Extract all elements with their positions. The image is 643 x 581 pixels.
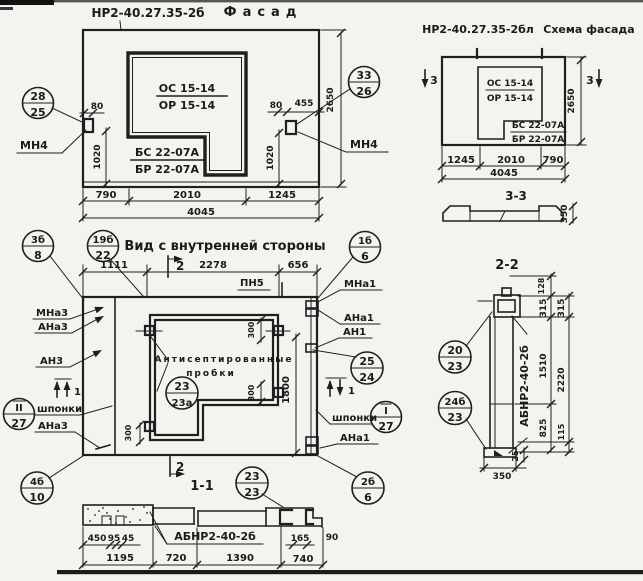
svg-text:1020: 1020 — [266, 145, 276, 170]
svg-text:1020: 1020 — [93, 144, 103, 169]
svg-text:790: 790 — [543, 155, 564, 166]
section-2-2: 2-2 АБНР2-40-2б 128 315 1510 825 315 — [439, 258, 575, 482]
svg-text:20: 20 — [447, 344, 463, 357]
svg-text:1111: 1111 — [100, 260, 128, 271]
inner-view-drawing: Вид с внутренней стороны 3б 8 19б 22 1б … — [4, 231, 402, 505]
schema-mark: НР2-40.27.35-2бл — [422, 23, 534, 36]
svg-text:3: 3 — [586, 74, 594, 87]
svg-text:АНа3: АНа3 — [38, 421, 68, 432]
svg-text:25: 25 — [359, 355, 374, 368]
label-ana1: АНа1 — [318, 310, 380, 324]
anchor-label-mn4-right: МН4 — [298, 132, 388, 152]
svg-text:I: I — [384, 406, 388, 417]
svg-text:4045: 4045 — [490, 168, 518, 179]
facade-window-code-bottom: ОР 15-14 — [159, 99, 216, 112]
svg-text:90: 90 — [326, 533, 339, 543]
section-2-2-title: 2-2 — [495, 258, 519, 273]
label-mna3: МНа3 — [33, 304, 105, 319]
svg-text:2б: 2б — [361, 476, 375, 488]
inner-view-title: Вид с внутренней стороны — [124, 239, 325, 254]
callout-28-25: 28 25 — [23, 88, 85, 124]
svg-text:23: 23 — [447, 411, 462, 424]
svg-text:1: 1 — [74, 387, 81, 398]
svg-text:4045: 4045 — [187, 207, 215, 218]
svg-text:2650: 2650 — [567, 88, 577, 113]
svg-text:128: 128 — [537, 277, 546, 294]
svg-text:АН3: АН3 — [40, 356, 63, 367]
section-2-2-profile — [478, 288, 520, 457]
label-ana1-lower: АНа1 — [320, 433, 378, 448]
svg-text:2: 2 — [176, 259, 184, 273]
svg-text:8: 8 — [34, 249, 42, 262]
section-1-1-profile — [83, 505, 322, 527]
label-an3: АН3 — [36, 347, 104, 367]
embed-mn4-right — [286, 121, 296, 134]
svg-text:1390: 1390 — [226, 553, 254, 564]
facade-dims-right: 80 455 1020 2650 — [266, 29, 346, 188]
svg-text:6: 6 — [364, 491, 372, 504]
facade-window-code-top: ОС 15-14 — [159, 82, 216, 95]
svg-text:315: 315 — [557, 299, 567, 318]
label-shponki-left: шпонки — [34, 404, 112, 415]
section-1-1: 1-1 23 23 АБНР2-40-2б 450 — [79, 467, 338, 569]
svg-text:720: 720 — [166, 553, 187, 564]
svg-text:26: 26 — [356, 85, 372, 98]
label-an1: АН1 — [315, 327, 372, 348]
svg-text:АНа1: АНа1 — [340, 433, 370, 444]
svg-text:4б: 4б — [30, 476, 44, 488]
svg-text:315: 315 — [539, 299, 549, 318]
svg-text:300: 300 — [247, 321, 256, 338]
svg-text:АБНР2-40-2б: АБНР2-40-2б — [174, 530, 256, 543]
callout-20-23: 20 23 — [439, 312, 492, 373]
svg-text:2220: 2220 — [557, 367, 567, 392]
svg-text:23: 23 — [244, 470, 259, 483]
svg-text:80: 80 — [91, 102, 104, 112]
svg-text:825: 825 — [539, 419, 549, 438]
callout-23-23: 23 23 — [236, 467, 283, 507]
svg-text:МНа3: МНа3 — [36, 308, 68, 319]
section-3-3-title: 3-3 — [505, 189, 527, 203]
svg-text:МН4: МН4 — [350, 138, 378, 151]
svg-text:350: 350 — [560, 205, 570, 224]
svg-text:740: 740 — [293, 554, 314, 565]
svg-text:II: II — [15, 403, 22, 414]
svg-text:27: 27 — [378, 420, 393, 433]
facade-title: Фасад — [224, 5, 303, 20]
svg-text:1800: 1800 — [281, 376, 292, 404]
callout-24b-23: 24б 23 — [439, 392, 487, 450]
svg-text:АН1: АН1 — [343, 327, 366, 338]
svg-text:2278: 2278 — [199, 260, 227, 271]
svg-text:33: 33 — [356, 69, 371, 82]
label-ana3-lower: АНа3 — [35, 421, 100, 448]
svg-text:790: 790 — [96, 190, 117, 201]
section-cut-3-left: 3 — [422, 70, 438, 88]
svg-text:3: 3 — [430, 74, 438, 87]
svg-text:2: 2 — [176, 460, 184, 474]
schema-door-code-top: БС 22-07А — [512, 121, 564, 131]
facade-drawing: НР2-40.27.35-2б Фасад ОС 15-14 ОР 15-14 … — [17, 5, 388, 222]
svg-text:2010: 2010 — [497, 155, 525, 166]
section-1-1-label: АБНР2-40-2б — [150, 512, 263, 544]
facade-dims-bottom: 790 2010 1245 4045 — [79, 189, 323, 222]
label-mna1: МНа1 — [318, 279, 382, 302]
callout-II-27: II 27 — [4, 399, 35, 431]
callout-4b-10: 4б 10 — [21, 456, 83, 504]
svg-text:350: 350 — [493, 472, 512, 482]
svg-text:19б: 19б — [93, 234, 114, 246]
svg-text:6: 6 — [361, 250, 369, 263]
svg-text:656: 656 — [288, 260, 309, 271]
svg-text:28: 28 — [30, 90, 45, 103]
svg-text:1б: 1б — [358, 235, 372, 247]
svg-text:25: 25 — [30, 106, 45, 119]
concrete-speckle — [87, 506, 148, 524]
svg-text:1195: 1195 — [106, 553, 134, 564]
technical-drawing: НР2-40.27.35-2б Фасад ОС 15-14 ОР 15-14 … — [0, 0, 643, 581]
svg-text:шпонки: шпонки — [37, 404, 82, 415]
inner-dim-1800: 1800 — [281, 333, 300, 457]
svg-text:450: 450 — [88, 534, 107, 544]
svg-text:Антисептированные: Антисептированные — [155, 355, 294, 365]
svg-text:300: 300 — [247, 384, 256, 401]
svg-text:23: 23 — [447, 360, 462, 373]
callout-2b-6: 2б 6 — [318, 456, 384, 504]
svg-text:АБНР2-40-2б: АБНР2-40-2б — [518, 345, 531, 427]
inner-dims-top: 1111 2278 656 — [79, 260, 321, 296]
svg-text:1245: 1245 — [268, 190, 296, 201]
svg-text:300: 300 — [124, 424, 133, 441]
svg-text:23: 23 — [174, 380, 189, 393]
schema-window-code-top: ОС 15-14 — [487, 79, 533, 89]
svg-text:пробки: пробки — [186, 368, 236, 379]
svg-text:24б: 24б — [445, 396, 466, 408]
facade-door-code-bottom: БР 22-07А — [135, 163, 199, 176]
schema-drawing: НР2-40.27.35-2бл Схема фасада ОС 15-14 О… — [422, 23, 635, 225]
svg-text:МН4: МН4 — [20, 139, 48, 152]
svg-text:27: 27 — [11, 417, 26, 430]
section-cut-1-right: 1 — [326, 378, 355, 397]
schema-window-code-bottom: ОР 15-14 — [487, 94, 533, 104]
section-1-1-title: 1-1 — [190, 479, 214, 494]
svg-text:24: 24 — [359, 371, 375, 384]
callout-25-24: 25 24 — [313, 350, 383, 384]
section-cut-2-top: 2 — [168, 256, 184, 277]
schema-door-code-bottom: БР 22-07А — [512, 135, 564, 145]
svg-text:3б: 3б — [31, 234, 45, 246]
svg-text:10: 10 — [29, 491, 45, 504]
section-cut-3-right: 3 — [586, 70, 602, 88]
svg-text:ПН5: ПН5 — [240, 278, 264, 289]
svg-text:1: 1 — [348, 386, 355, 397]
label-pn5: ПН5 — [238, 278, 282, 297]
svg-text:1510: 1510 — [539, 353, 549, 378]
callout-3b-8: 3б 8 — [23, 231, 85, 301]
svg-text:23: 23 — [244, 486, 259, 499]
svg-text:455: 455 — [295, 99, 314, 109]
section-cut-1-left: 1 — [54, 379, 81, 398]
schema-dims: 2650 1245 2010 790 4045 — [438, 56, 586, 183]
svg-text:23а: 23а — [172, 398, 193, 409]
blueprint-sheet: НР2-40.27.35-2б Фасад ОС 15-14 ОР 15-14 … — [0, 0, 643, 581]
schema-title: Схема фасада — [543, 23, 634, 36]
svg-text:2650: 2650 — [326, 87, 336, 112]
svg-text:115: 115 — [557, 423, 566, 440]
anchor-label-mn4-left: МН4 — [17, 130, 86, 153]
svg-text:1245: 1245 — [447, 155, 475, 166]
callout-33-26: 33 26 — [297, 67, 380, 125]
facade-door-code-top: БС 22-07А — [135, 146, 199, 159]
svg-text:165: 165 — [291, 534, 310, 544]
section-3-3: 3-3 350 — [443, 189, 577, 225]
svg-text:МНа1: МНа1 — [344, 279, 376, 290]
svg-text:АНа1: АНа1 — [344, 313, 374, 324]
label-shponki-right: шпонки — [316, 410, 377, 424]
section-cut-2-bottom: 2 — [170, 457, 185, 477]
callout-23-23a: 23 23а — [166, 377, 198, 409]
facade-mark: НР2-40.27.35-2б — [91, 6, 204, 20]
svg-text:АНа3: АНа3 — [38, 322, 68, 333]
svg-text:2010: 2010 — [173, 190, 201, 201]
callout-I-27: I 27 — [371, 402, 402, 434]
facade-dims-left: 80 1020 — [80, 102, 110, 188]
scan-artifacts — [0, 0, 643, 574]
